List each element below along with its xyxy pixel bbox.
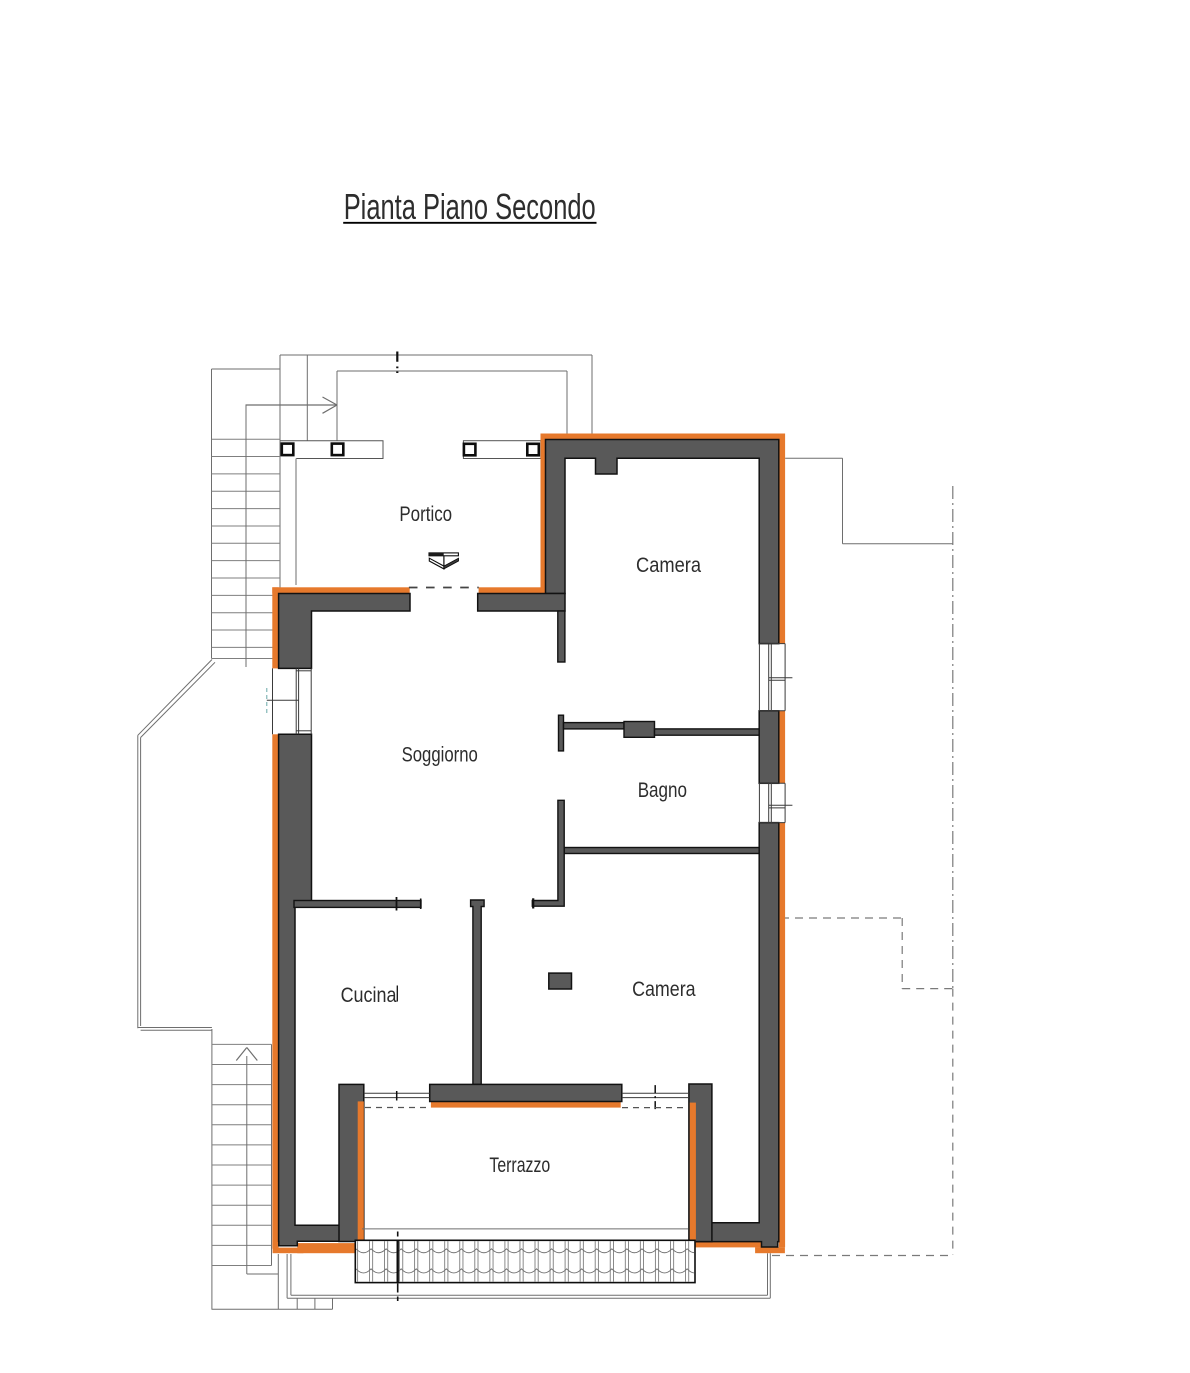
- svg-text:Cucina: Cucina: [341, 984, 397, 1007]
- svg-text:Camera: Camera: [632, 978, 696, 1001]
- svg-text:Soggiorno: Soggiorno: [402, 744, 478, 767]
- svg-text:Camera: Camera: [636, 554, 701, 577]
- svg-text:Bagno: Bagno: [638, 779, 687, 802]
- svg-text:Terrazzo: Terrazzo: [489, 1154, 550, 1177]
- svg-text:Pianta Piano Secondo: Pianta Piano Secondo: [344, 186, 596, 227]
- svg-text:Portico: Portico: [399, 503, 452, 526]
